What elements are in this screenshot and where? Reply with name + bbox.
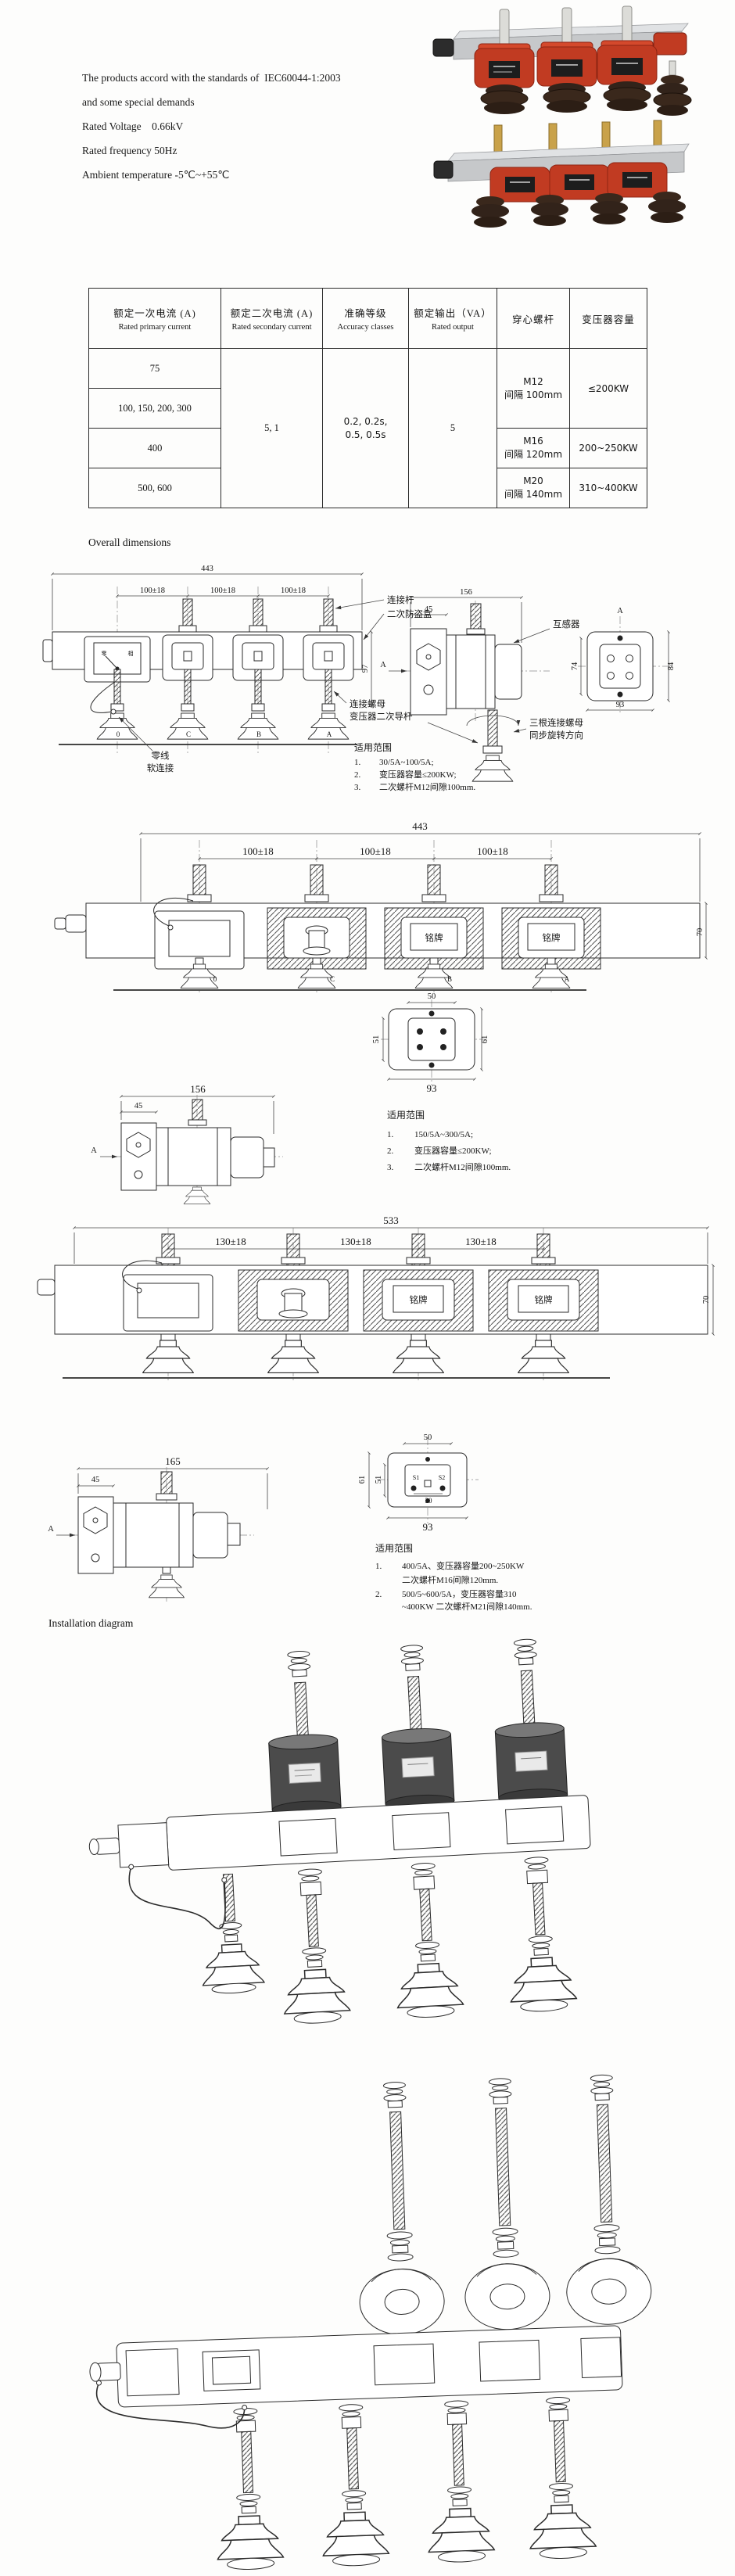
d2-section-a: A [91,1146,97,1155]
d3-scope-1-line1: 400/5A、变压器容量200~250KW [402,1560,525,1571]
d1-dim-face-l: 74 [571,662,579,670]
d2-phase-0: 0 [213,975,217,983]
installation-drawing-2 [47,2072,688,2573]
d1-phase-a: A [327,730,332,738]
d1-scope-3-text: 二次螺杆M12间隙100mm. [379,781,475,792]
d3-dim-total: 533 [383,1214,399,1226]
install-1-neutral-column [197,1873,264,1995]
d3-ct-units: 铭牌 铭牌 [238,1270,598,1331]
d1-label-secondary-rod: 变压器二次导杆 [350,711,413,722]
d1-rotation-detail: 三根连接螺母 同步旋转方向 [467,710,583,781]
primary-75: 75 [89,349,221,389]
install-1-neutral-wire [128,1862,227,1933]
install-2-ring-cts [359,2257,653,2336]
d1-label-neutral-1: 零线 [152,750,170,761]
d3-dim-pitch-1: 130±18 [215,1236,246,1247]
d2-cable-gland [66,915,86,932]
d1-dim-side-off: 45 [425,605,433,614]
datasheet-page: The products accord with the standards o… [0,0,735,2576]
bolt-m16: M16间隔 120mm [497,429,570,468]
d2-front-view: 443 100±18 100±18 100±18 [55,820,706,995]
product-photo-bottom [426,116,700,233]
d1-scope-title: 适用范围 [354,742,392,753]
d1-dim-height: 97 [361,665,370,673]
d3-dim-bar-h: 70 [702,1296,711,1304]
d3-scope-1-num: 1. [375,1562,382,1571]
d1-dim-pitch-2: 100±18 [210,587,235,595]
stud [390,2111,405,2229]
d3-scope-2-line1: 500/5~600/5A，变压器容量310 [402,1588,517,1599]
primary-400: 400 [89,429,221,468]
d1-label-nut: 连接螺母 [350,698,385,709]
rated-frequency: Rated frequency 50Hz [82,138,457,163]
d1-dim-total: 443 [201,565,213,573]
standards-line-2: and some special demands [82,90,457,114]
d2-phase-a: A [565,975,570,983]
ct-unit-group [490,163,667,202]
d2-scope-1-text: 150/5A~300/5A; [414,1130,473,1139]
d1-front-view: 443 100±18 100±18 100±18 零 相 [43,565,371,754]
d1-phase-c: C [186,730,191,738]
cable-gland [434,161,453,178]
stud [295,1682,309,1742]
d2-dim-face-r: 61 [481,1035,489,1044]
output-value: 5 [409,349,497,508]
d1-phase-0: 0 [117,730,120,738]
nameplate-sticker [611,58,643,75]
accuracy-value: 0.2, 0.2s,0.5, 0.5s [323,349,409,508]
d2-scope-3-num: 3. [387,1163,394,1172]
header-secondary-current: 额定二次电流 (A)Rated secondary current [221,289,323,349]
ct-unit-group [475,6,657,114]
spec-table: 额定一次电流 (A)Rated primary current 额定二次电流 (… [88,288,647,508]
stud [562,8,572,45]
d3-ct-side-body [113,1503,193,1567]
d3-cable-gland [38,1279,55,1295]
d1-studs [179,599,337,632]
header-output: 额定输出（VA）Rated output [409,289,497,349]
stud [500,9,509,47]
d3-scope-1-line2: 二次螺杆M16间隙120mm. [402,1574,498,1585]
d3-terminal-s1: S1 [413,1474,419,1481]
install-2-assembly [81,2073,661,2574]
header-bolt: 穿心螺杆 [497,289,570,349]
table-row: 75 5, 1 0.2, 0.2s,0.5, 0.5s 5 M12间隔 100m… [89,349,647,389]
d2-dim-total: 443 [412,820,428,832]
d1-face-a: A [617,607,623,615]
d3-nameplate-label-2: 铭牌 [535,1294,553,1305]
d2-scope-3-text: 二次螺杆M12间隙100mm. [414,1161,511,1172]
d1-label-neutral-2: 软连接 [147,762,174,773]
install-1-terminal-box [118,1823,169,1867]
d3-dim-pitch-2: 130±18 [340,1236,371,1247]
installation-diagram-heading: Installation diagram [48,1617,133,1630]
dimension-drawing-2: 443 100±18 100±18 100±18 [39,813,712,1204]
spec-table-wrap: 额定一次电流 (A)Rated primary current 额定二次电流 (… [88,288,647,508]
install-2-bottom-hardware [213,2396,597,2571]
dimension-drawing-1: 443 100±18 100±18 100±18 零 相 [43,557,708,791]
d1-cable-gland [43,640,52,662]
d2-dim-pitch-3: 100±18 [477,845,508,857]
d1-label-rotate-2: 同步旋转方向 [529,730,583,741]
d3-front-view: 533 130±18 130±18 130±18 [38,1214,713,1383]
d3-side-view: 165 45 A [48,1455,267,1602]
header-capacity: 变压器容量 [570,289,647,349]
intro-text: The products accord with the standards o… [82,66,457,187]
d3-scope-title: 适用范围 [375,1543,413,1554]
installation-drawing-1 [74,1638,669,2065]
install-2-top-hardware [382,2075,620,2262]
d2-ct-side-body [156,1128,231,1186]
d1-dim-face-w: 93 [616,701,625,709]
d3-dim-face-top: 50 [424,1433,432,1442]
d1-scope-3-num: 3. [354,783,361,792]
overall-dimensions-heading: Overall dimensions [88,536,170,549]
d1-dim-pitch-1: 100±18 [140,587,165,595]
d1-label-rotate-1: 三根连接螺母 [529,717,583,728]
d1-insulators [97,713,349,739]
d3-section-a: A [48,1525,54,1534]
d1-scope-1-num: 1. [354,758,361,767]
install-1-assembly [80,1637,599,2035]
install-2-meter [203,2350,260,2391]
nameplate-sticker [489,61,520,78]
dimension-drawing-3: 533 130±18 130±18 130±18 [31,1204,719,1611]
d1-dim-face-r: 84 [667,662,676,670]
d2-scope-2-num: 2. [387,1146,394,1156]
d3-scope-list: 适用范围 1. 400/5A、变压器容量200~250KW 二次螺杆M16间隙1… [375,1543,532,1612]
d1-ct-side-body [446,635,495,709]
d1-section-a: A [380,661,386,669]
d1-scope-1-text: 30/5A~100/5A; [379,758,434,767]
capacity-310-400: 310~400KW [570,468,647,508]
d2-scope-title: 适用范围 [387,1110,425,1121]
d1-scope-2-text: 变压器容量≤200KW; [379,769,457,780]
d2-face-view: 50 51 61 93 [372,992,489,1094]
standards-line-1: The products accord with the standards o… [82,66,457,90]
cable-gland [433,39,454,56]
d1-label-transformer: 互感器 [553,619,580,630]
d2-phase-c: C [330,975,335,983]
header-primary-current: 额定一次电流 (A)Rated primary current [89,289,221,349]
d3-terminal-s2: S2 [439,1474,445,1481]
d2-scope-list: 适用范围 1. 150/5A~300/5A; 2. 变压器容量≤200KW; 3… [387,1110,511,1172]
d2-dim-face-top: 50 [428,992,436,1001]
header-accuracy: 准确等级Accuracy classes [323,289,409,349]
d2-dim-pitch-1: 100±18 [242,845,274,857]
primary-500-600: 500, 600 [89,468,221,508]
d1-scope-2-num: 2. [354,770,361,780]
install-2-busbar [117,2326,622,2407]
d2-dim-side-w: 156 [190,1083,206,1095]
stud [597,2104,611,2222]
d3-nameplate-label-1: 铭牌 [410,1294,428,1305]
ct-unit-partial [654,33,687,55]
d2-nameplate-label-2: 铭牌 [543,932,561,943]
stud [622,6,632,44]
d3-face-view: S1 S2 50 61 51 30 93 [358,1433,479,1533]
d2-studs [188,865,563,902]
d2-dim-face-w: 93 [427,1082,437,1094]
d2-dim-bar-h: 70 [696,928,705,937]
d1-side-view: 156 45 A 互感器 [380,588,580,723]
d2-phase-b: B [447,975,452,983]
stud [521,1670,535,1731]
nameplate-sticker [505,177,535,192]
spare-insulator [654,61,691,116]
d3-dim-side-off: 45 [91,1476,100,1484]
d3-dim-face-l2: 51 [375,1476,383,1484]
d3-dim-face-l1: 61 [358,1476,367,1484]
d3-dim-pitch-3: 130±18 [465,1236,497,1247]
d1-gauge-right: 相 [128,650,134,657]
product-photo-top [422,2,696,117]
nameplate-sticker [551,59,583,77]
d2-scope-1-num: 1. [387,1130,394,1139]
capacity-200: ≤200KW [570,349,647,429]
d1-face-view: A 74 84 93 [571,607,676,713]
header-row: 额定一次电流 (A)Rated primary current 额定二次电流 (… [89,289,647,349]
d1-phase-b: B [256,730,261,738]
d3-dim-face-w: 93 [423,1521,433,1533]
d3-scope-2-num: 2. [375,1590,382,1599]
d3-dim-side-w: 165 [165,1455,181,1467]
d3-scope-2-line2: ~400KW 二次螺杆M21间隙140mm. [402,1601,532,1612]
d2-side-view: 156 45 A [91,1083,283,1204]
d2-dim-pitch-2: 100±18 [360,845,391,857]
d1-dim-pitch-3: 100±18 [281,587,306,595]
primary-100-300: 100, 150, 200, 300 [89,389,221,429]
install-2-terminal-box [126,2349,179,2396]
bolt-m12: M12间隔 100mm [497,349,570,429]
d2-nameplate-label-1: 铭牌 [425,932,443,943]
d1-dim-side-w: 156 [460,588,472,597]
rated-voltage: Rated Voltage 0.66kV [82,114,457,138]
secondary-value: 5, 1 [221,349,323,508]
d3-insulators [143,1334,568,1372]
stud [408,1677,422,1737]
install-1-bottom-hardware [197,1856,577,2029]
bolt-m20: M20间隔 140mm [497,468,570,508]
capacity-200-250: 200~250KW [570,429,647,468]
d1-scope-list: 适用范围 1. 30/5A~100/5A; 2. 变压器容量≤200KW; 3.… [354,742,475,792]
ambient-temperature: Ambient temperature -5℃~+55℃ [82,163,457,187]
d3-dim-face-inner: 30 [425,1497,433,1505]
d2-dim-face-l: 51 [372,1035,381,1044]
d2-dim-side-off: 45 [134,1102,143,1110]
d2-scope-2-text: 变压器容量≤200KW; [414,1145,492,1156]
stud [496,2108,511,2226]
